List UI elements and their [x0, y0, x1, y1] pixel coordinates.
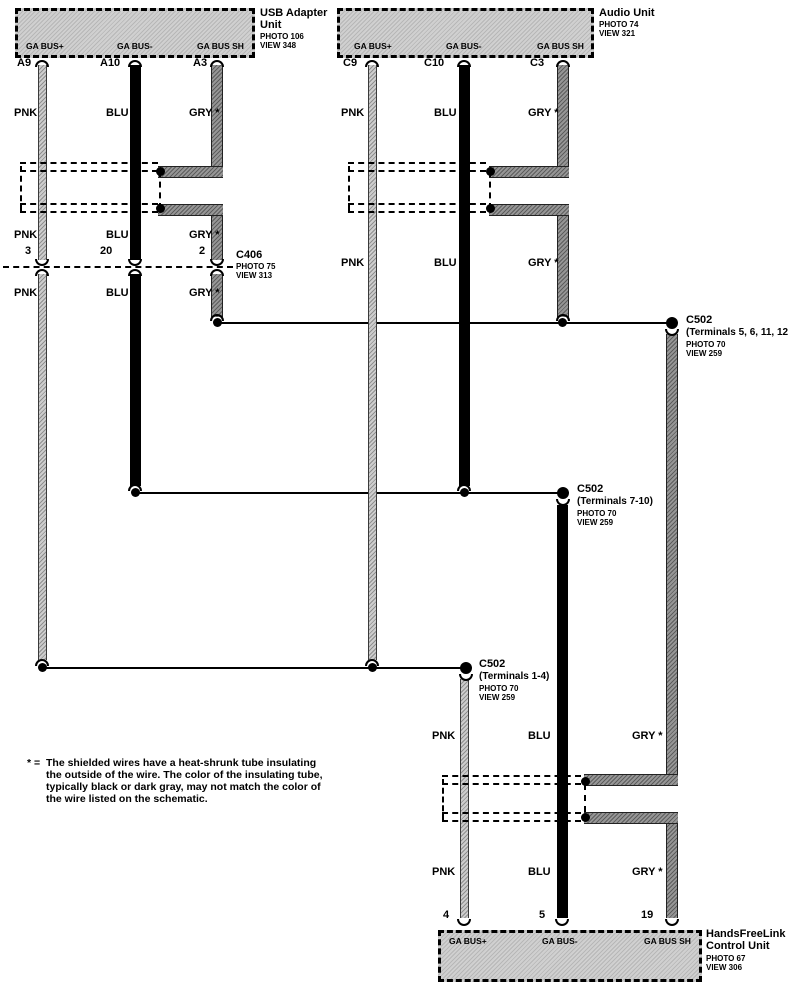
terminal-symbol — [210, 269, 224, 276]
terminal-symbol — [210, 259, 224, 266]
terminal-symbol — [457, 919, 471, 926]
gry-shield-stub — [584, 812, 678, 824]
wire-label-pnk: PNK — [432, 731, 455, 742]
shield-junction-dot — [156, 167, 165, 176]
audio-terminal-ga-bus-plus: GA BUS+ — [354, 42, 392, 51]
junction-dot — [38, 663, 47, 672]
pnk-wire-segment — [38, 274, 47, 660]
c406-connector-line — [3, 266, 233, 268]
c406-label: C406 — [236, 250, 262, 261]
c502-bus-plus-terminals: (Terminals 1-4) — [479, 671, 549, 682]
wire-label-blu: BLU — [528, 731, 551, 742]
c502-bus-minus-photo: PHOTO 70 — [577, 510, 616, 518]
gry-shield-stub — [489, 204, 569, 216]
c502-shield-label: C502 — [686, 315, 712, 326]
usb-terminal-ga-bus-sh: GA BUS SH — [197, 42, 244, 51]
shield-dash — [20, 211, 158, 213]
c502-bus-plus-junction-dot — [460, 662, 472, 674]
shield-dash — [442, 820, 581, 822]
c406-pin-2: 2 — [199, 246, 205, 257]
c502-bus-plus-label: C502 — [479, 659, 505, 670]
usb-terminal-ga-bus-plus: GA BUS+ — [26, 42, 64, 51]
terminal-symbol — [210, 60, 224, 67]
blu-wire-segment — [459, 65, 470, 486]
wiring-diagram: GA BUS+ GA BUS- GA BUS SH USB Adapter Un… — [0, 0, 788, 996]
terminal-symbol — [665, 919, 679, 926]
usb-unit-title-line2: Unit — [260, 20, 281, 31]
wire-label-gry: GRY * — [632, 867, 663, 878]
c502-bus-plus-photo: PHOTO 70 — [479, 685, 518, 693]
hfl-unit-title-line2: Control Unit — [706, 941, 770, 952]
shield-junction-dot — [156, 204, 165, 213]
wire-label-gry: GRY * — [632, 731, 663, 742]
junction-dot — [460, 488, 469, 497]
terminal-symbol — [35, 259, 49, 266]
wire-label-gry: GRY * — [528, 258, 559, 269]
c502-bus-minus-terminals: (Terminals 7-10) — [577, 496, 653, 507]
hfl-terminal-ga-bus-plus: GA BUS+ — [449, 937, 487, 946]
junction-dot — [368, 663, 377, 672]
wire-label-pnk: PNK — [14, 288, 37, 299]
hfl-unit-view: VIEW 306 — [706, 964, 742, 972]
usb-unit-photo: PHOTO 106 — [260, 33, 304, 41]
shield-dash — [348, 162, 486, 164]
hfl-terminal-ga-bus-sh: GA BUS SH — [644, 937, 691, 946]
shield-dash — [348, 166, 350, 211]
usb-unit-view: VIEW 348 — [260, 42, 296, 50]
shield-dash — [584, 784, 586, 812]
ga-bus-plus-junction-line — [42, 667, 467, 669]
gry-shield-stub — [584, 774, 678, 786]
c406-pin-20: 20 — [100, 246, 112, 257]
terminal-symbol — [556, 60, 570, 67]
audio-pin-c10: C10 — [424, 58, 444, 69]
c406-photo: PHOTO 75 — [236, 263, 275, 271]
footnote-line: The shielded wires have a heat-shrunk tu… — [46, 757, 316, 769]
c406-pin-3: 3 — [25, 246, 31, 257]
wire-label-blu: BLU — [528, 867, 551, 878]
gry-shield-stub — [489, 166, 569, 178]
usb-unit-title-line1: USB Adapter — [260, 8, 327, 19]
blu-wire-segment — [557, 505, 568, 918]
wire-label-blu: BLU — [434, 108, 457, 119]
shield-dash — [20, 170, 158, 172]
hfl-pin-4: 4 — [443, 910, 449, 921]
shield-dash — [20, 166, 22, 211]
audio-pin-c9: C9 — [343, 58, 357, 69]
shield-dash — [348, 170, 486, 172]
wire-label-blu: BLU — [434, 258, 457, 269]
hfl-unit-photo: PHOTO 67 — [706, 955, 745, 963]
shield-junction-dot — [486, 167, 495, 176]
audio-unit-photo: PHOTO 74 — [599, 21, 638, 29]
gry-wire-segment — [211, 65, 223, 178]
usb-pin-a9: A9 — [17, 58, 31, 69]
junction-dot — [558, 318, 567, 327]
hfl-pin-5: 5 — [539, 910, 545, 921]
gry-wire-segment — [557, 65, 569, 178]
pnk-wire-segment — [460, 679, 469, 918]
c502-shield-junction-dot — [666, 317, 678, 329]
terminal-symbol — [35, 269, 49, 276]
wire-label-gry: GRY * — [189, 108, 220, 119]
c502-shield-view: VIEW 259 — [686, 350, 722, 358]
shield-junction-dot — [486, 204, 495, 213]
gry-shield-stub — [158, 166, 223, 178]
wire-label-pnk: PNK — [14, 230, 37, 241]
junction-dot — [213, 318, 222, 327]
usb-terminal-ga-bus-minus: GA BUS- — [117, 42, 153, 51]
junction-dot — [131, 488, 140, 497]
shield-dash — [20, 162, 158, 164]
terminal-symbol — [128, 60, 142, 67]
wire-label-blu: BLU — [106, 230, 129, 241]
usb-pin-a3: A3 — [193, 58, 207, 69]
c502-bus-plus-view: VIEW 259 — [479, 694, 515, 702]
c502-bus-minus-view: VIEW 259 — [577, 519, 613, 527]
shield-dash — [348, 203, 486, 205]
shield-dash — [442, 783, 581, 785]
c502-shield-photo: PHOTO 70 — [686, 341, 725, 349]
audio-unit-title: Audio Unit — [599, 8, 655, 19]
terminal-symbol — [128, 259, 142, 266]
c502-shield-terminals: (Terminals 5, 6, 11, 12) — [686, 327, 788, 338]
gry-wire-segment — [666, 334, 678, 778]
c406-view: VIEW 313 — [236, 272, 272, 280]
wire-label-blu: BLU — [106, 108, 129, 119]
usb-pin-a10: A10 — [100, 58, 120, 69]
wire-label-pnk: PNK — [341, 108, 364, 119]
shield-dash — [442, 812, 581, 814]
wire-label-blu: BLU — [106, 288, 129, 299]
ga-bus-sh-junction-line — [217, 322, 672, 324]
wire-label-gry: GRY * — [189, 230, 220, 241]
shield-dash — [442, 775, 581, 777]
terminal-symbol — [365, 60, 379, 67]
footnote-line: the outside of the wire. The color of th… — [46, 769, 323, 781]
terminal-symbol — [457, 60, 471, 67]
c502-bus-minus-label: C502 — [577, 484, 603, 495]
wire-label-gry: GRY * — [189, 288, 220, 299]
shield-junction-dot — [581, 777, 590, 786]
gry-wire-segment — [666, 822, 678, 918]
wire-label-pnk: PNK — [432, 867, 455, 878]
terminal-symbol — [555, 919, 569, 926]
shield-dash — [348, 211, 486, 213]
shield-junction-dot — [581, 813, 590, 822]
gry-shield-stub — [158, 204, 223, 216]
footnote-marker: * = — [27, 757, 40, 769]
audio-pin-c3: C3 — [530, 58, 544, 69]
terminal-symbol — [35, 60, 49, 67]
wire-label-pnk: PNK — [341, 258, 364, 269]
footnote-line: the wire listed on the schematic. — [46, 793, 208, 805]
ga-bus-minus-junction-line — [135, 492, 563, 494]
audio-terminal-ga-bus-minus: GA BUS- — [446, 42, 482, 51]
blu-wire-segment — [130, 274, 141, 486]
footnote-line: typically black or dark gray, may not ma… — [46, 781, 321, 793]
hfl-terminal-ga-bus-minus: GA BUS- — [542, 937, 578, 946]
audio-unit-view: VIEW 321 — [599, 30, 635, 38]
audio-terminal-ga-bus-sh: GA BUS SH — [537, 42, 584, 51]
shield-dash — [442, 779, 444, 820]
wire-label-pnk: PNK — [14, 108, 37, 119]
c502-bus-minus-junction-dot — [557, 487, 569, 499]
hfl-unit-title-line1: HandsFreeLink — [706, 929, 785, 940]
terminal-symbol — [128, 269, 142, 276]
pnk-wire-segment — [368, 65, 377, 660]
hfl-pin-19: 19 — [641, 910, 653, 921]
shield-dash — [20, 203, 158, 205]
wire-label-gry: GRY * — [528, 108, 559, 119]
